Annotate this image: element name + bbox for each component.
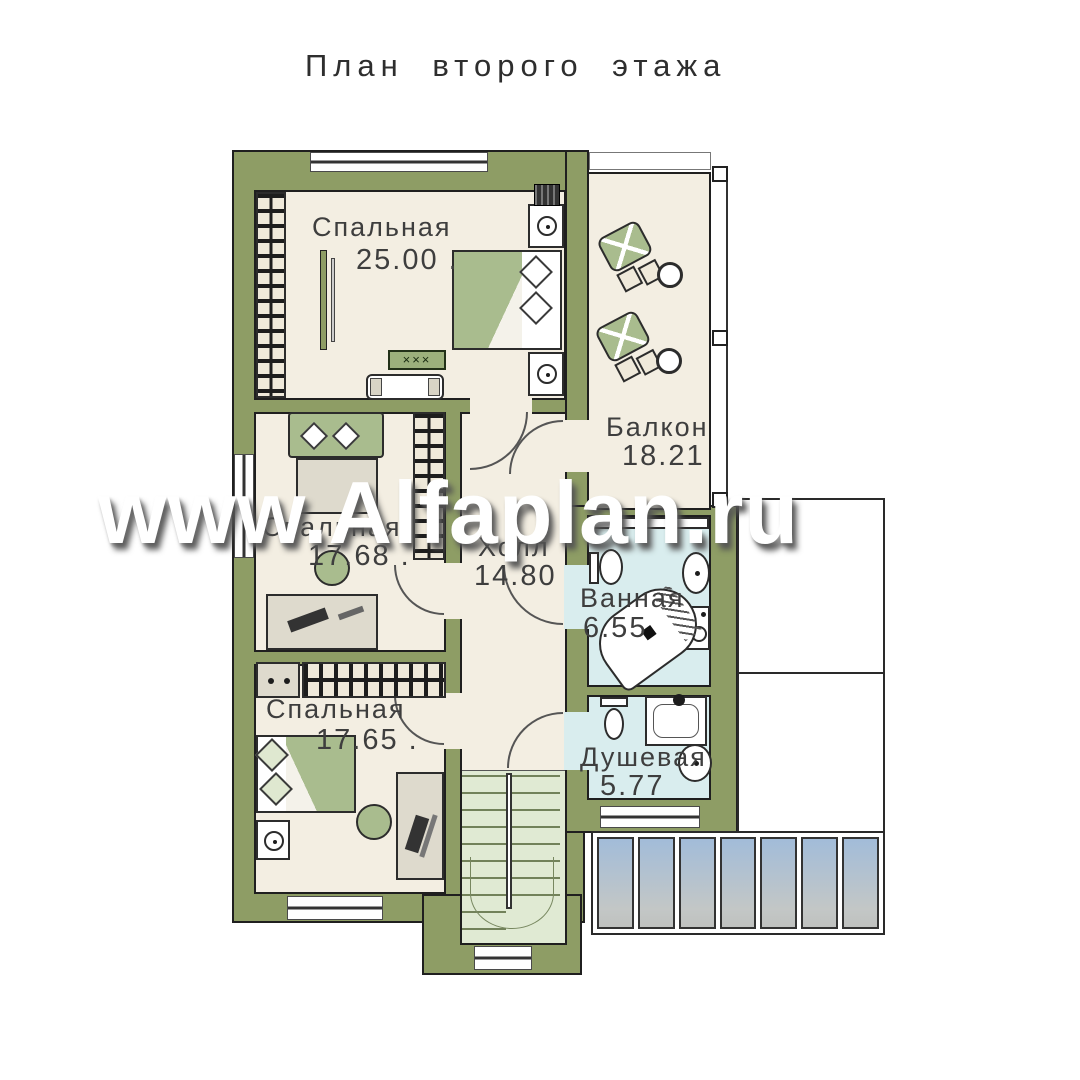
label-balcony-name: Балкон: [606, 412, 709, 443]
tv-panel: [331, 258, 335, 342]
wardrobe-bedroom3: [302, 662, 446, 698]
side-table: [656, 348, 682, 374]
pillow: [300, 422, 328, 450]
floor-plan-canvas: План второго этажа: [0, 0, 1080, 1080]
label-hall-area: 14.80: [474, 560, 557, 593]
skylight-panel: [842, 837, 879, 929]
pillow: [519, 291, 553, 325]
nightstand: [528, 352, 564, 396]
pillow: [255, 738, 289, 772]
shower-head-icon: [673, 694, 685, 706]
window-stair-bay: [474, 946, 532, 970]
bed-bedroom1: [452, 250, 562, 350]
pillow: [332, 422, 360, 450]
label-bedroom1-name: Спальная: [312, 212, 452, 243]
skylight-panel: [720, 837, 757, 929]
staircase: [462, 770, 565, 943]
window-shower-bottom: [600, 806, 700, 828]
lamp-icon: [537, 216, 557, 236]
door-opening-bedroom2: [444, 563, 462, 619]
skylight-panels: [591, 831, 885, 935]
label-bedroom3-name: Спальная: [266, 694, 406, 725]
label-bedroom1-area: 25.00 .: [356, 244, 459, 277]
window-bedroom3-bottom: [287, 896, 383, 920]
bed-headboard-bedroom2: [288, 412, 384, 458]
balcony-roof-edge: [589, 152, 711, 170]
vent-unit-icon: [534, 184, 560, 206]
stair-turn-arc: [470, 857, 554, 929]
toilet-tank: [600, 697, 628, 707]
dresser-bedroom3: [256, 662, 300, 698]
sofa-bedroom1: [366, 374, 444, 400]
desk-bedroom3: [396, 772, 444, 880]
side-table: [657, 262, 683, 288]
desk-bedroom2: [266, 594, 378, 650]
label-shower-name: Душевая: [580, 742, 707, 773]
lamp-icon: [264, 831, 284, 851]
watermark: www.Alfaplan.ru: [98, 462, 799, 564]
label-bathroom-name: Ванная: [580, 583, 684, 614]
skylight-panel: [760, 837, 797, 929]
railing-post: [712, 166, 728, 182]
skylight-panel: [638, 837, 675, 929]
lamp-icon: [537, 364, 557, 384]
label-bedroom3-area: 17.65 .: [316, 724, 419, 757]
toilet-shower-room: [604, 708, 624, 740]
keyboard-icon: [287, 608, 329, 633]
skylight-panel: [679, 837, 716, 929]
door-opening-bedroom3: [444, 693, 462, 749]
pillow: [519, 255, 553, 289]
duvet: [454, 252, 522, 348]
roof-divider-line: [739, 672, 883, 674]
label-bathroom-area: 6.55: [583, 612, 647, 645]
tv-bedroom1: [320, 250, 327, 350]
skylight-panel: [801, 837, 838, 929]
nightstand: [256, 820, 290, 860]
nightstand: [528, 204, 564, 248]
window-bedroom1-top: [310, 152, 488, 172]
desk-chair-bedroom3: [356, 804, 392, 840]
shower-tray: [645, 696, 707, 746]
label-shower-area: 5.77: [600, 770, 664, 803]
railing-post: [712, 330, 728, 346]
skylight-panel: [597, 837, 634, 929]
coffee-table: ×××: [388, 350, 446, 370]
wardrobe-bedroom1: [256, 192, 286, 398]
page-title: План второго этажа: [305, 48, 726, 84]
